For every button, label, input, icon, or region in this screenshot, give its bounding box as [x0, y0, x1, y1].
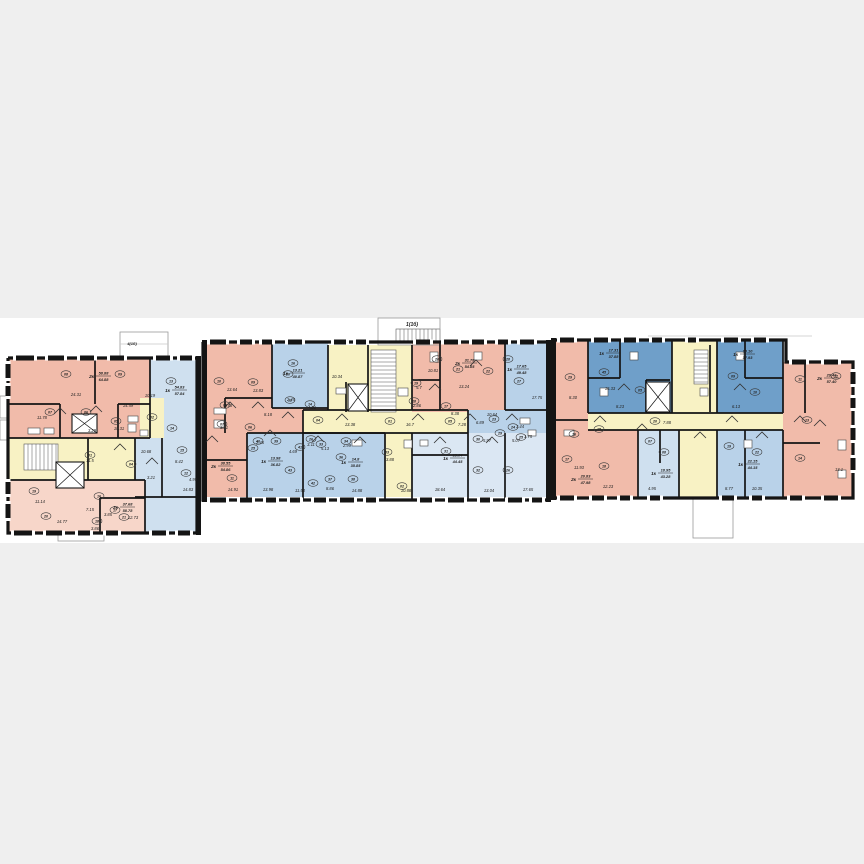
area-label: 12.73 — [128, 515, 139, 520]
area-label: 2.86 — [412, 403, 422, 408]
window-block — [14, 531, 32, 536]
room-number: 08 — [64, 372, 68, 376]
area-label: 3.31 — [220, 425, 228, 430]
area-label: 14.49 — [123, 403, 134, 408]
room-fill — [638, 430, 679, 498]
window-block — [498, 340, 508, 345]
window-block — [46, 531, 62, 536]
area-label: 3.86 — [91, 526, 100, 531]
apartment-type-label: 2к — [816, 376, 823, 381]
fixture — [128, 424, 136, 432]
section-separator-wall — [551, 338, 556, 500]
window-block — [156, 356, 170, 361]
room-number: 09 — [251, 380, 255, 384]
fixture — [700, 388, 708, 396]
room-number: 01 — [88, 453, 92, 457]
room-number: 09 — [118, 372, 122, 376]
window-block — [210, 340, 226, 345]
area-label: 5.13 — [321, 446, 330, 451]
balcony-outline — [693, 498, 733, 538]
area-label: 8.38 — [451, 411, 460, 416]
area-label: 3.11 — [307, 442, 315, 447]
fixture — [140, 430, 148, 436]
room-number: 23 — [491, 417, 496, 421]
room-number: 20 — [434, 357, 439, 361]
apartment-type-label: 1к — [165, 388, 171, 393]
room-number: 11 — [798, 377, 802, 381]
stair-area — [396, 329, 440, 341]
area-label: 13.38 — [345, 422, 356, 427]
fixture — [744, 440, 752, 448]
area-label: 12.23 — [603, 484, 614, 489]
area-label: 13.64 — [227, 387, 238, 392]
window-block — [592, 496, 604, 501]
window-block — [620, 496, 630, 501]
fixture — [352, 440, 362, 446]
screenshot-stage: 0809070605020104141312151916201817211009… — [0, 0, 864, 864]
area-label: 6.89 — [476, 420, 485, 425]
window-block — [560, 496, 574, 501]
apartment-type-label: 1к — [443, 456, 449, 461]
area-label: 14.88 — [352, 488, 363, 493]
fixture — [404, 440, 412, 448]
window-block — [6, 482, 11, 494]
area-label: 2.45 — [286, 397, 296, 402]
area-label: 10.35 — [752, 486, 763, 491]
room-number: 04 — [316, 418, 320, 422]
living-area-value: 58.88 — [99, 371, 110, 376]
room-number: 21 — [455, 367, 460, 371]
window-block — [110, 356, 124, 361]
total-area-value: 36.82 — [271, 462, 282, 467]
apartment-type-label: 1к — [283, 371, 289, 376]
room-number: 10 — [753, 390, 757, 394]
area-label: 8.30 — [569, 395, 578, 400]
window-block — [356, 340, 366, 345]
apartment-type-label: 1к — [651, 471, 657, 476]
stair-area — [24, 444, 58, 470]
area-label: 11.5 — [86, 458, 94, 463]
area-label: 3.88 — [386, 457, 395, 462]
window-block — [16, 356, 34, 361]
window-block — [240, 498, 252, 503]
living-area-value: 37.68 — [123, 502, 134, 507]
window-block — [290, 498, 300, 503]
area-label: 11.93 — [574, 465, 585, 470]
area-label: 10.64 — [487, 412, 498, 417]
area-label: 17.65 — [523, 487, 534, 492]
room-number: 41 — [297, 445, 302, 449]
area-label: 8.86 — [326, 486, 335, 491]
living-area-value: 13.21 — [293, 368, 303, 373]
window-block — [650, 496, 660, 501]
window-block — [180, 356, 192, 361]
fixture — [336, 388, 346, 394]
room-number: 11 — [230, 476, 234, 480]
room-number: 31 — [444, 449, 448, 453]
window-block — [48, 356, 64, 361]
room-number: 09 — [731, 374, 735, 378]
room-number: 14 — [170, 426, 174, 430]
total-area-value: 64.88 — [99, 377, 110, 382]
window-block — [624, 338, 636, 343]
room-number: 24 — [510, 425, 515, 429]
window-block — [824, 360, 838, 365]
window-block — [80, 356, 94, 361]
living-area-value: 38.55 — [221, 461, 232, 466]
area-label: 3.85 — [104, 512, 113, 517]
room-number: 01 — [388, 419, 392, 423]
window-block — [106, 531, 118, 536]
living-area-value: 13.04 — [453, 453, 464, 458]
apartment-type-label: 1к — [261, 459, 267, 464]
room-number: 29 — [497, 431, 502, 435]
window-block — [851, 458, 856, 470]
room-number: 13 — [169, 379, 173, 383]
room-number: 43 — [287, 468, 292, 472]
room-number: 20 — [652, 419, 657, 423]
window-block — [266, 498, 276, 503]
living-area-value: 31.78 — [465, 358, 476, 363]
area-label: 10.19 — [145, 393, 156, 398]
window-block — [210, 498, 226, 503]
window-block — [652, 338, 662, 343]
window-block — [448, 498, 464, 503]
total-area-value: 57.84 — [175, 391, 186, 396]
room-number: 14 — [798, 456, 802, 460]
area-label: 11.78 — [37, 415, 48, 420]
area-label: 1.75 — [524, 434, 533, 439]
room-number: 21 — [121, 515, 126, 519]
window-block — [851, 428, 856, 440]
room-number: 20 — [43, 514, 48, 518]
room-number: 32 — [476, 468, 480, 472]
plan-annotation: 4(1б) — [126, 341, 137, 346]
total-area-value: 37.93 — [743, 355, 754, 360]
area-label: 2.45 — [255, 440, 265, 445]
apartment-type-label: 1к — [738, 462, 744, 467]
apartment-type-label: 2к — [210, 464, 217, 469]
apartment-type-label: 2к — [112, 505, 119, 510]
stair-area — [371, 350, 396, 412]
area-label: 7.15 — [86, 507, 95, 512]
area-label: 16.33 — [605, 386, 616, 391]
room-number: 18 — [95, 519, 99, 523]
window-block — [532, 498, 542, 503]
room-number: 19 — [32, 489, 36, 493]
living-area-value: 17.65 — [517, 364, 528, 369]
window-block — [178, 531, 190, 536]
area-label: 11.14 — [35, 499, 46, 504]
total-area-value: 58.78 — [123, 508, 134, 513]
window-block — [508, 498, 522, 503]
area-label: 8.18 — [264, 412, 273, 417]
fixture — [420, 440, 428, 446]
window-block — [722, 496, 734, 501]
apartment-type-label: 2к — [88, 374, 95, 379]
area-label: 18.64 — [435, 487, 446, 492]
area-label: 13.1 — [835, 467, 843, 472]
room-number: 03 — [385, 450, 389, 454]
area-label: 10.68 — [141, 449, 152, 454]
total-area-value: 44.45 — [452, 459, 464, 464]
area-label: 13.83 — [253, 388, 264, 393]
total-area-value: 37.88 — [609, 354, 620, 359]
room-number: 19 — [727, 444, 731, 448]
area-label: 5.97 — [483, 438, 492, 443]
living-area-value: 15.10 — [743, 349, 754, 354]
area-label: 7.88 — [663, 420, 672, 425]
apartment-type-label: 2к — [454, 361, 461, 366]
window-block — [472, 340, 484, 345]
total-area-value: 54.85 — [465, 364, 476, 369]
total-area-value: 54.86 — [221, 467, 232, 472]
room-number: 39 — [274, 439, 278, 443]
area-label: 17.75 — [532, 395, 543, 400]
fixture — [128, 416, 138, 422]
fixture — [474, 352, 482, 360]
window-block — [792, 360, 806, 365]
window-block — [240, 340, 252, 345]
section-separator-wall — [202, 340, 207, 502]
window-block — [420, 498, 432, 503]
floor-plan-svg: 0809070605020104141312151916201817211009… — [0, 0, 864, 864]
window-block — [754, 338, 766, 343]
fixture — [28, 428, 40, 434]
window-block — [851, 372, 856, 384]
area-label: 13.04 — [484, 488, 495, 493]
area-label: 2.99 — [342, 443, 352, 448]
living-area-value: 18.95 — [661, 468, 672, 473]
room-number: 18 — [602, 464, 606, 468]
area-label: 14.83 — [183, 487, 194, 492]
window-block — [688, 338, 696, 343]
area-label: 10.88 — [401, 488, 412, 493]
area-label: 7.28 — [458, 422, 467, 427]
area-label: 10.81 — [428, 368, 438, 373]
room-number: 08 — [662, 450, 666, 454]
area-label: 16.7 — [406, 422, 415, 427]
section-separator-wall — [196, 356, 201, 535]
living-area-value: 13.98 — [271, 456, 282, 461]
area-label: 8.42 — [175, 459, 184, 464]
room-number: 10 — [217, 379, 221, 383]
window-block — [6, 504, 11, 518]
window-block — [444, 340, 458, 345]
living-area-value: 20.83 — [580, 474, 592, 479]
area-label: 13.24 — [459, 384, 470, 389]
living-area-value: 54.83 — [175, 385, 186, 390]
area-label: 24.31 — [70, 392, 81, 397]
total-area-value: 44.15 — [747, 465, 759, 470]
living-area-value: 17.31 — [609, 348, 619, 353]
window-block — [152, 531, 166, 536]
room-number: 22 — [754, 450, 759, 454]
apartment-type-label: 1к — [599, 351, 605, 356]
room-number: 02 — [150, 415, 154, 419]
fixture — [838, 440, 846, 450]
window-block — [851, 398, 856, 408]
area-label: 3.29 — [88, 428, 97, 433]
window-block — [480, 498, 490, 503]
stair-area — [694, 350, 708, 384]
room-number: 28 — [505, 357, 510, 361]
total-area-value: 57.40 — [827, 379, 838, 384]
total-area-value: 40.87 — [292, 374, 304, 379]
window-block — [262, 340, 272, 345]
apartment-type-label: 1к — [341, 460, 347, 465]
area-label: 1.78 — [224, 403, 233, 408]
fixture — [44, 428, 54, 434]
area-label: 14.77 — [57, 519, 68, 524]
window-block — [416, 340, 430, 345]
window-block — [594, 338, 608, 343]
window-block — [288, 340, 302, 345]
area-label: 4.95 — [648, 486, 657, 491]
room-fill — [303, 410, 468, 433]
area-label: 8.23 — [616, 404, 625, 409]
total-area-value: 43.28 — [660, 474, 672, 479]
fixture — [630, 352, 638, 360]
plan-annotation: 1(1б) — [406, 321, 418, 328]
area-label: 4.21 — [308, 405, 316, 410]
room-number: 12 — [184, 471, 188, 475]
window-block — [340, 498, 354, 503]
room-number: 22 — [485, 369, 490, 373]
apartment-type-label: 1к — [507, 367, 513, 372]
living-area-value: 22.15 — [747, 459, 759, 464]
window-block — [752, 496, 762, 501]
area-label: 5.07 — [512, 438, 521, 443]
window-block — [6, 364, 11, 378]
section-separator-wall — [546, 340, 551, 502]
window-block — [314, 498, 326, 503]
room-fill — [412, 342, 505, 412]
total-area-value: 49.48 — [516, 370, 528, 375]
area-label: 10.31 — [114, 426, 124, 431]
fixture — [398, 388, 408, 396]
area-label: 10.34 — [332, 374, 343, 379]
area-label: 4.99 — [189, 477, 198, 482]
room-number: 29 — [567, 375, 572, 379]
area-label: 8.77 — [725, 486, 734, 491]
window-block — [520, 340, 534, 345]
area-label: 6.13 — [732, 404, 741, 409]
area-label: 14.91 — [228, 487, 238, 492]
living-area-value: 29.40 — [826, 373, 838, 378]
area-label: 5.7 — [416, 385, 422, 390]
room-number: 30 — [476, 437, 480, 441]
area-label: 3.44 — [516, 424, 525, 429]
total-area-value: 35.85 — [351, 463, 362, 468]
window-block — [824, 496, 838, 501]
window-block — [366, 498, 376, 503]
room-number: 04 — [129, 462, 133, 466]
room-number: 13 — [805, 418, 809, 422]
area-label: 13.98 — [263, 487, 274, 492]
living-area-value: 14.8 — [352, 457, 360, 462]
fixture — [214, 408, 226, 414]
window-block — [334, 340, 346, 345]
window-block — [78, 531, 90, 536]
area-label: 3.21 — [147, 475, 155, 480]
total-area-value: 47.98 — [580, 480, 592, 485]
area-label: 4.69 — [289, 449, 298, 454]
room-number: 42 — [310, 481, 315, 485]
apartment-type-label: 2к — [570, 477, 577, 482]
window-block — [790, 496, 802, 501]
apartment-type-label: 1к — [733, 352, 739, 357]
window-block — [724, 338, 738, 343]
window-block — [6, 386, 11, 396]
window-block — [560, 338, 574, 343]
area-label: 11.54 — [295, 488, 306, 493]
room-number: 38 — [351, 477, 355, 481]
